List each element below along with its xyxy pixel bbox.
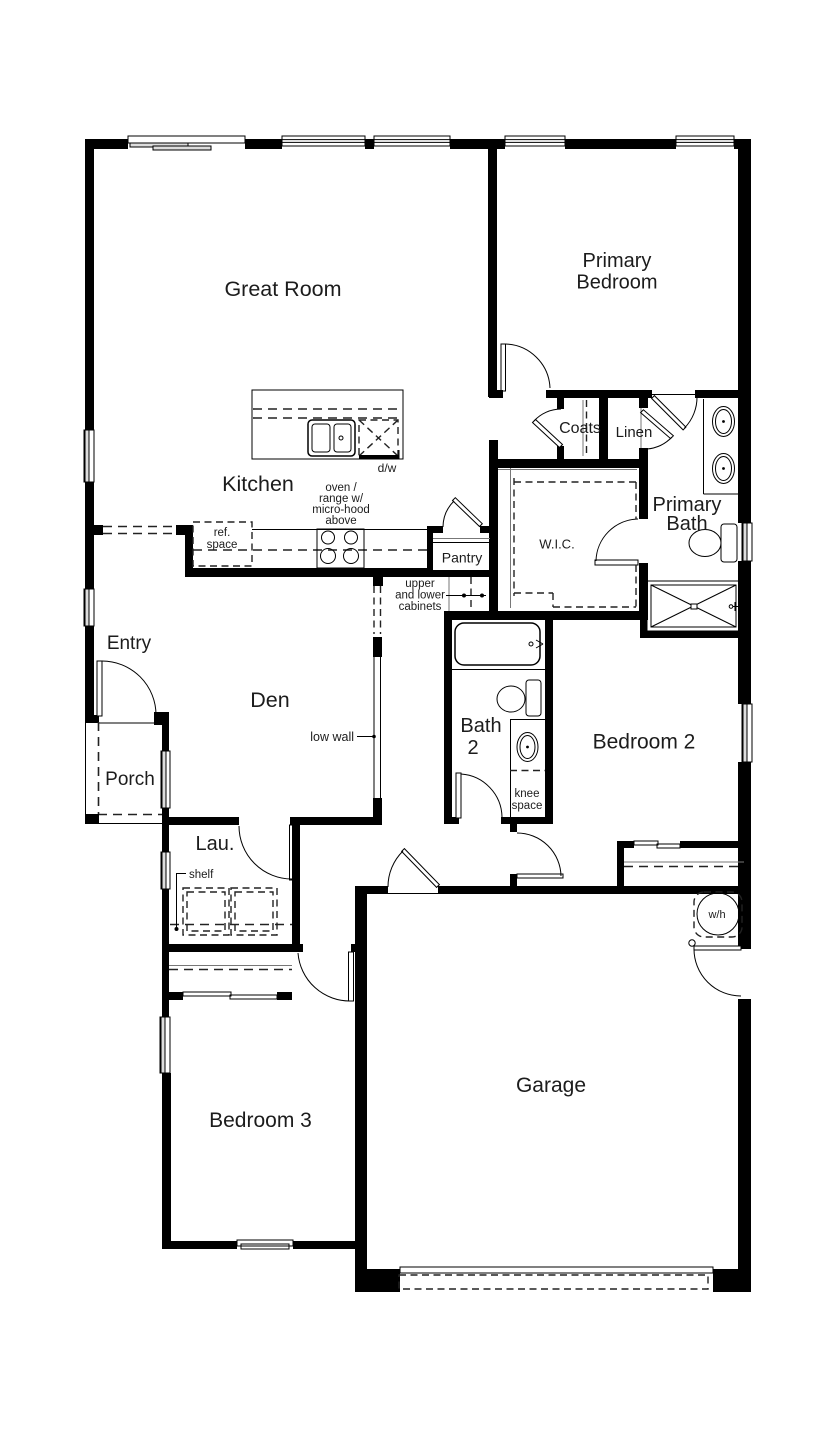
svg-text:Bath: Bath <box>666 513 707 535</box>
svg-text:Den: Den <box>250 688 289 712</box>
svg-text:ref.: ref. <box>214 527 231 539</box>
svg-text:cabinets: cabinets <box>399 601 442 613</box>
svg-text:Primary: Primary <box>583 250 652 272</box>
svg-text:Coats: Coats <box>559 420 601 437</box>
svg-text:upper: upper <box>405 578 435 590</box>
svg-text:d/w: d/w <box>378 461 397 475</box>
svg-text:knee: knee <box>515 788 540 800</box>
svg-text:W.I.C.: W.I.C. <box>539 537 574 552</box>
svg-text:and lower: and lower <box>395 590 445 602</box>
svg-text:Great Room: Great Room <box>224 277 341 301</box>
svg-text:w/h: w/h <box>707 909 725 921</box>
svg-text:space: space <box>512 800 543 812</box>
svg-text:Pantry: Pantry <box>442 550 482 566</box>
svg-text:Garage: Garage <box>516 1074 586 1097</box>
svg-text:above: above <box>325 515 356 527</box>
svg-text:2: 2 <box>467 737 478 759</box>
svg-text:Entry: Entry <box>107 633 152 654</box>
svg-text:Porch: Porch <box>105 769 155 790</box>
svg-text:shelf: shelf <box>189 869 214 881</box>
svg-text:Kitchen: Kitchen <box>222 472 294 496</box>
svg-text:low wall: low wall <box>310 730 354 744</box>
svg-text:Bedroom 2: Bedroom 2 <box>593 731 696 754</box>
svg-text:Bedroom 3: Bedroom 3 <box>209 1109 312 1132</box>
svg-text:space: space <box>207 539 238 551</box>
svg-text:Bath: Bath <box>460 715 501 737</box>
svg-text:Bedroom: Bedroom <box>576 272 657 294</box>
svg-text:Lau.: Lau. <box>196 833 235 855</box>
svg-text:Linen: Linen <box>616 424 653 441</box>
